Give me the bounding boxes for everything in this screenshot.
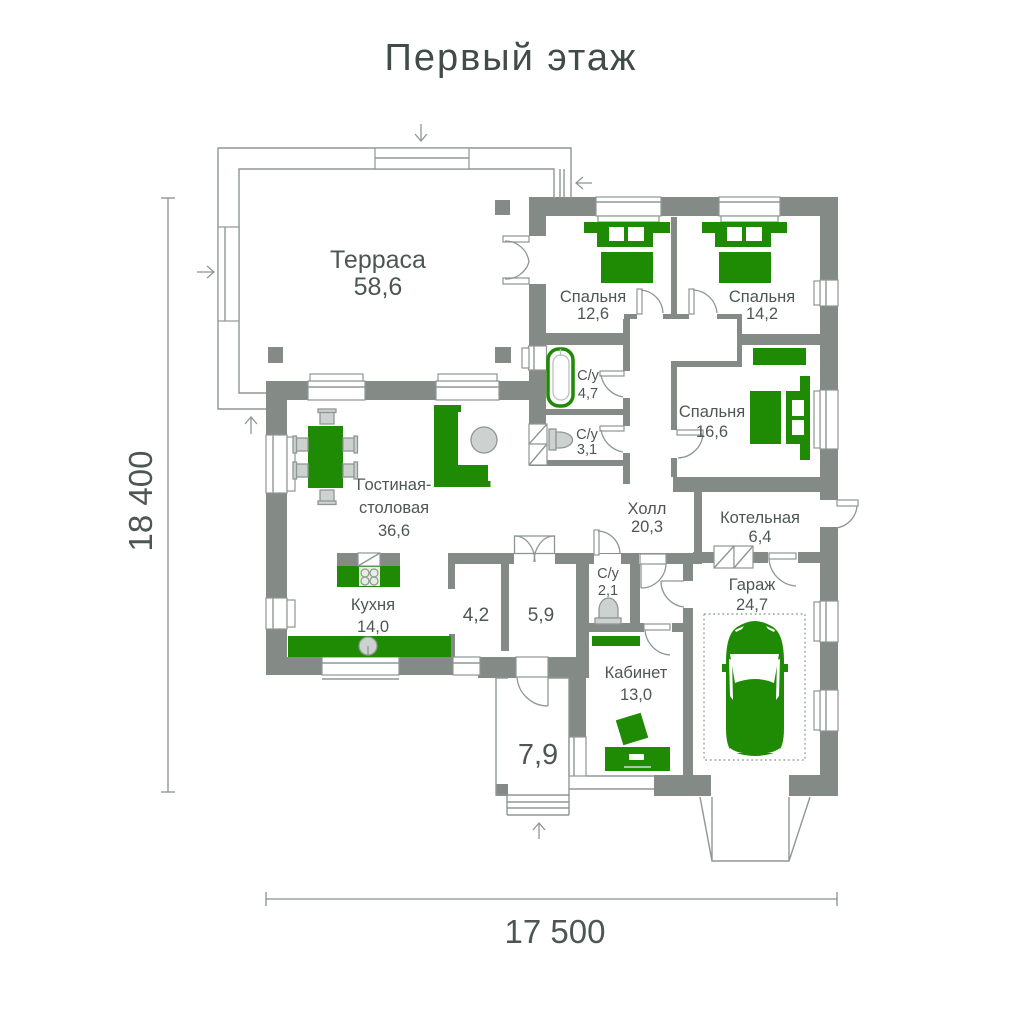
svg-text:С/у: С/у [576, 427, 599, 443]
svg-text:Терраса: Терраса [330, 246, 426, 274]
svg-text:20,3: 20,3 [631, 518, 663, 536]
svg-text:5,9: 5,9 [528, 605, 554, 626]
svg-text:Кухня: Кухня [351, 596, 395, 614]
svg-text:7,9: 7,9 [518, 739, 558, 771]
svg-text:2,1: 2,1 [598, 583, 618, 599]
svg-text:Спальня: Спальня [560, 288, 626, 306]
svg-text:14,0: 14,0 [357, 618, 389, 636]
svg-text:16,6: 16,6 [696, 423, 728, 441]
svg-text:4,2: 4,2 [463, 605, 489, 626]
svg-text:13,0: 13,0 [620, 686, 652, 704]
svg-text:4,7: 4,7 [578, 386, 598, 402]
svg-text:столовая: столовая [359, 499, 429, 517]
svg-text:58,6: 58,6 [354, 273, 403, 301]
svg-text:17 500: 17 500 [505, 913, 606, 950]
svg-text:6,4: 6,4 [749, 528, 772, 546]
svg-text:14,2: 14,2 [746, 305, 778, 323]
svg-text:3,1: 3,1 [577, 442, 597, 458]
svg-text:24,7: 24,7 [736, 596, 768, 614]
svg-text:С/у: С/у [577, 368, 600, 384]
svg-text:Гостиная-: Гостиная- [357, 476, 432, 494]
svg-text:12,6: 12,6 [577, 305, 609, 323]
svg-text:Спальня: Спальня [729, 288, 795, 306]
svg-text:18 400: 18 400 [122, 451, 159, 552]
svg-text:С/у: С/у [597, 566, 620, 582]
svg-text:Котельная: Котельная [720, 509, 800, 527]
svg-text:Холл: Холл [628, 500, 667, 518]
svg-text:Кабинет: Кабинет [605, 664, 668, 682]
svg-text:Гараж: Гараж [729, 576, 776, 594]
svg-text:Первый этаж: Первый этаж [385, 37, 638, 79]
svg-text:Спальня: Спальня [679, 403, 745, 421]
svg-text:36,6: 36,6 [378, 522, 410, 540]
